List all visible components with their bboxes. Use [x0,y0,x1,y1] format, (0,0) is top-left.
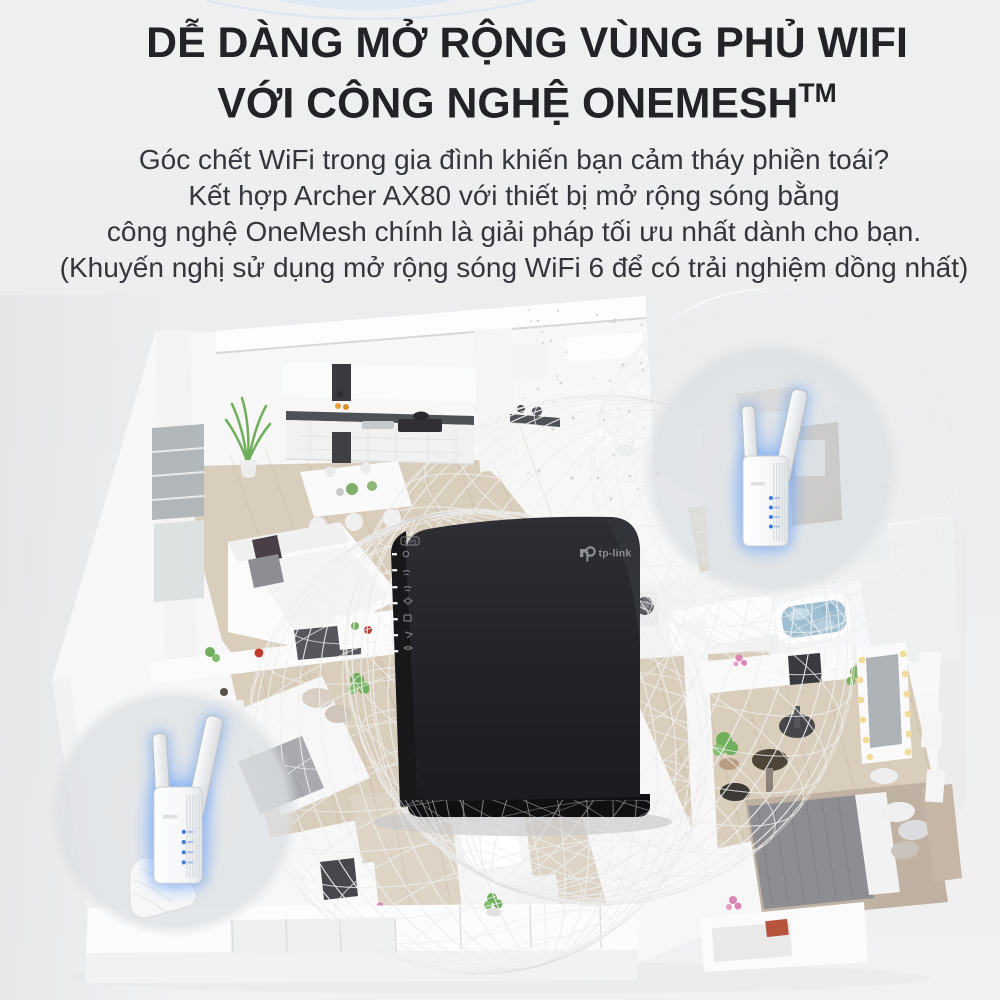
svg-text:WPS: WPS [404,540,417,546]
svg-text:tp-link: tp-link [599,548,632,560]
